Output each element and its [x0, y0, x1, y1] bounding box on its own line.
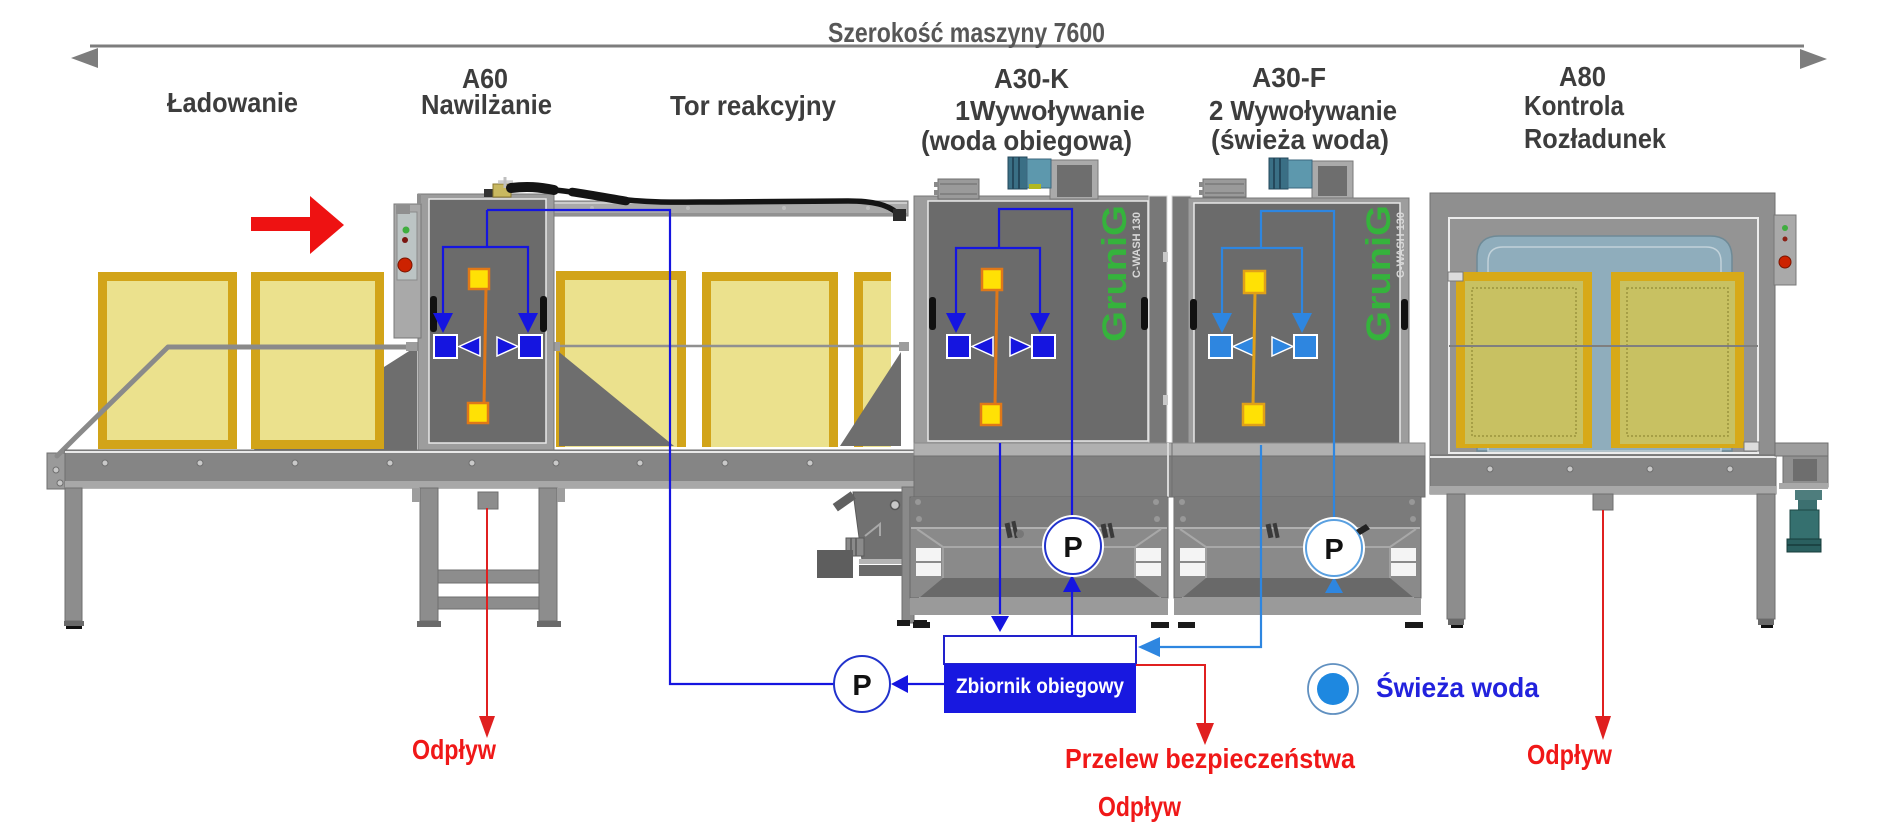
svg-text:Zbiornik obiegowy: Zbiornik obiegowy [956, 675, 1124, 698]
svg-text:(woda obiegowa): (woda obiegowa) [921, 125, 1132, 156]
svg-text:(świeża woda): (świeża woda) [1211, 124, 1389, 155]
svg-text:GruniG: GruniG [1096, 205, 1134, 342]
svg-text:Odpływ: Odpływ [412, 734, 496, 765]
svg-text:C-WASH 130: C-WASH 130 [1395, 212, 1407, 278]
svg-text:Świeża woda: Świeża woda [1376, 672, 1539, 703]
svg-text:A30-F: A30-F [1252, 62, 1326, 93]
svg-text:Rozładunek: Rozładunek [1524, 123, 1666, 154]
svg-text:Odpływ: Odpływ [1098, 791, 1181, 822]
svg-text:1Wywoływanie: 1Wywoływanie [955, 95, 1145, 126]
svg-text:Tor reakcyjny: Tor reakcyjny [670, 90, 836, 121]
svg-text:Szerokość maszyny 7600: Szerokość maszyny 7600 [828, 17, 1105, 48]
svg-text:P: P [852, 670, 871, 702]
svg-text:A30-K: A30-K [994, 63, 1069, 94]
svg-text:P: P [1063, 532, 1082, 564]
svg-text:Nawilżanie: Nawilżanie [421, 89, 552, 120]
svg-text:P: P [1324, 534, 1343, 566]
svg-text:2 Wywoływanie: 2 Wywoływanie [1209, 95, 1397, 126]
svg-text:C-WASH 130: C-WASH 130 [1131, 212, 1143, 278]
svg-text:Ładowanie: Ładowanie [167, 87, 298, 118]
svg-text:Przelew bezpieczeństwa: Przelew bezpieczeństwa [1065, 743, 1355, 774]
svg-text:GruniG: GruniG [1360, 205, 1398, 342]
svg-text:A80: A80 [1559, 61, 1606, 92]
svg-text:Kontrola: Kontrola [1524, 90, 1624, 121]
svg-text:Odpływ: Odpływ [1527, 739, 1612, 770]
